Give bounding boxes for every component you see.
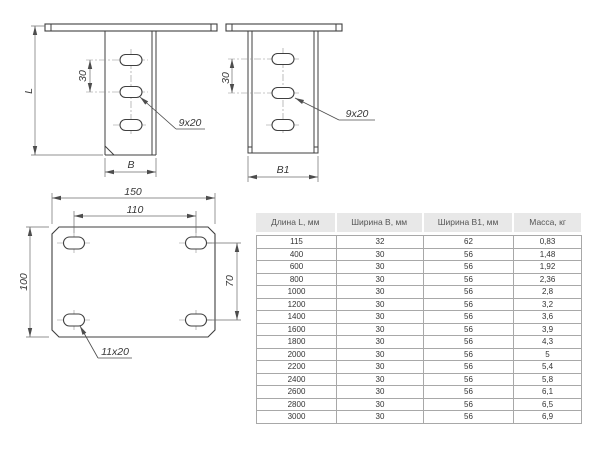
table-body: 11532620,83 40030561,48 60030561,92 8003…: [256, 235, 582, 424]
dim-label-length: L: [23, 88, 35, 94]
dim-label-slot-spacing: 30: [220, 72, 232, 84]
table-cell: 1,48: [514, 248, 582, 261]
table-row: 60030561,92: [257, 261, 582, 274]
table-cell: 56: [424, 286, 514, 299]
table-cell: 30: [337, 361, 424, 374]
slot-hole: [64, 314, 85, 326]
table-cell: 56: [424, 348, 514, 361]
table-cell: 3000: [257, 411, 337, 424]
table-cell: 30: [337, 273, 424, 286]
table-cell: 3,9: [514, 323, 582, 336]
table-cell: 56: [424, 336, 514, 349]
slot-hole: [120, 120, 142, 131]
table-row: 80030562,36: [257, 273, 582, 286]
table-row: 280030566,5: [257, 398, 582, 411]
column-header-width-b1: Ширина B1, мм: [424, 213, 512, 232]
table-cell: 2,8: [514, 286, 582, 299]
table-cell: 6,1: [514, 386, 582, 399]
table-cell: 1400: [257, 311, 337, 324]
table-cell: 56: [424, 261, 514, 274]
front-view: 30 B1 9x20: [220, 24, 375, 182]
dim-label-hole-spacing-y: 70: [224, 275, 236, 287]
table-row: 140030563,6: [257, 311, 582, 324]
table-cell: 0,83: [514, 236, 582, 249]
table-row: 240030565,8: [257, 373, 582, 386]
table-cell: 62: [424, 236, 514, 249]
table-cell: 30: [337, 411, 424, 424]
table-cell: 2000: [257, 348, 337, 361]
table-cell: 6,5: [514, 398, 582, 411]
table-cell: 56: [424, 411, 514, 424]
table-row: 120030563,2: [257, 298, 582, 311]
table-row: 11532620,83: [257, 236, 582, 249]
table-cell: 5: [514, 348, 582, 361]
side-top-plate: [45, 24, 217, 31]
table-cell: 32: [337, 236, 424, 249]
slot-hole: [186, 314, 207, 326]
table-cell: 30: [337, 336, 424, 349]
table-cell: 1800: [257, 336, 337, 349]
table-row: 200030565: [257, 348, 582, 361]
table-cell: 30: [337, 286, 424, 299]
table-cell: 600: [257, 261, 337, 274]
slot-hole: [272, 120, 294, 131]
table-cell: 30: [337, 261, 424, 274]
table-cell: 56: [424, 311, 514, 324]
table-cell: 2800: [257, 398, 337, 411]
table-cell: 4,3: [514, 336, 582, 349]
table-cell: 56: [424, 273, 514, 286]
table-row: 180030564,3: [257, 336, 582, 349]
dim-label-width-b: B: [127, 159, 134, 171]
slot-hole: [120, 87, 142, 98]
callout-slot-size: 11x20: [101, 346, 129, 358]
table-cell: 30: [337, 248, 424, 261]
slot-hole: [120, 55, 142, 66]
front-top-plate: [226, 24, 342, 31]
table-row: 260030566,1: [257, 386, 582, 399]
table-row: 220030565,4: [257, 361, 582, 374]
table-header-row: Длина L, мм Ширина B, мм Ширина B1, мм М…: [256, 213, 581, 232]
table-cell: 56: [424, 323, 514, 336]
table-row: 160030563,9: [257, 323, 582, 336]
dim-label-plate-width: 150: [124, 186, 142, 198]
table-cell: 30: [337, 373, 424, 386]
table-cell: 56: [424, 398, 514, 411]
slot-hole: [272, 54, 294, 65]
slot-hole: [64, 237, 85, 249]
plan-view: 150 110 100 70 11x20: [18, 186, 241, 358]
table-cell: 3,2: [514, 298, 582, 311]
table-cell: 115: [257, 236, 337, 249]
column-header-width-b: Ширина B, мм: [337, 213, 422, 232]
callout-slot-size: 9x20: [346, 108, 369, 120]
slot-hole: [272, 88, 294, 99]
table-cell: 56: [424, 298, 514, 311]
table-cell: 6,9: [514, 411, 582, 424]
table-cell: 800: [257, 273, 337, 286]
table-cell: 2400: [257, 373, 337, 386]
table-cell: 30: [337, 298, 424, 311]
table-cell: 30: [337, 386, 424, 399]
table-cell: 2200: [257, 361, 337, 374]
spec-table: Длина L, мм Ширина B, мм Ширина B1, мм М…: [256, 213, 581, 424]
table-cell: 56: [424, 386, 514, 399]
table-cell: 56: [424, 373, 514, 386]
table-cell: 2,36: [514, 273, 582, 286]
callout-slot-size: 9x20: [179, 117, 202, 129]
table-cell: 30: [337, 323, 424, 336]
table-cell: 1600: [257, 323, 337, 336]
table-cell: 3,6: [514, 311, 582, 324]
table-row: 300030566,9: [257, 411, 582, 424]
dim-label-hole-spacing-x: 110: [127, 204, 144, 216]
table-cell: 30: [337, 348, 424, 361]
drawing-sheet: L 30 B 9x20: [0, 0, 600, 450]
table-cell: 2600: [257, 386, 337, 399]
table-row: 40030561,48: [257, 248, 582, 261]
table-cell: 5,8: [514, 373, 582, 386]
table-row: 100030562,8: [257, 286, 582, 299]
table-cell: 400: [257, 248, 337, 261]
column-header-mass: Масса, кг: [514, 213, 581, 232]
dim-label-width-b1: B1: [277, 164, 290, 176]
table-cell: 30: [337, 398, 424, 411]
dim-label-slot-spacing: 30: [77, 70, 89, 82]
table-cell: 1000: [257, 286, 337, 299]
column-header-length: Длина L, мм: [256, 213, 335, 232]
table-cell: 5,4: [514, 361, 582, 374]
table-cell: 1,92: [514, 261, 582, 274]
slot-hole: [186, 237, 207, 249]
dim-label-plate-height: 100: [18, 273, 30, 291]
side-view: L 30 B 9x20: [23, 24, 217, 177]
table-cell: 56: [424, 248, 514, 261]
table-cell: 56: [424, 361, 514, 374]
table-cell: 30: [337, 311, 424, 324]
table-cell: 1200: [257, 298, 337, 311]
